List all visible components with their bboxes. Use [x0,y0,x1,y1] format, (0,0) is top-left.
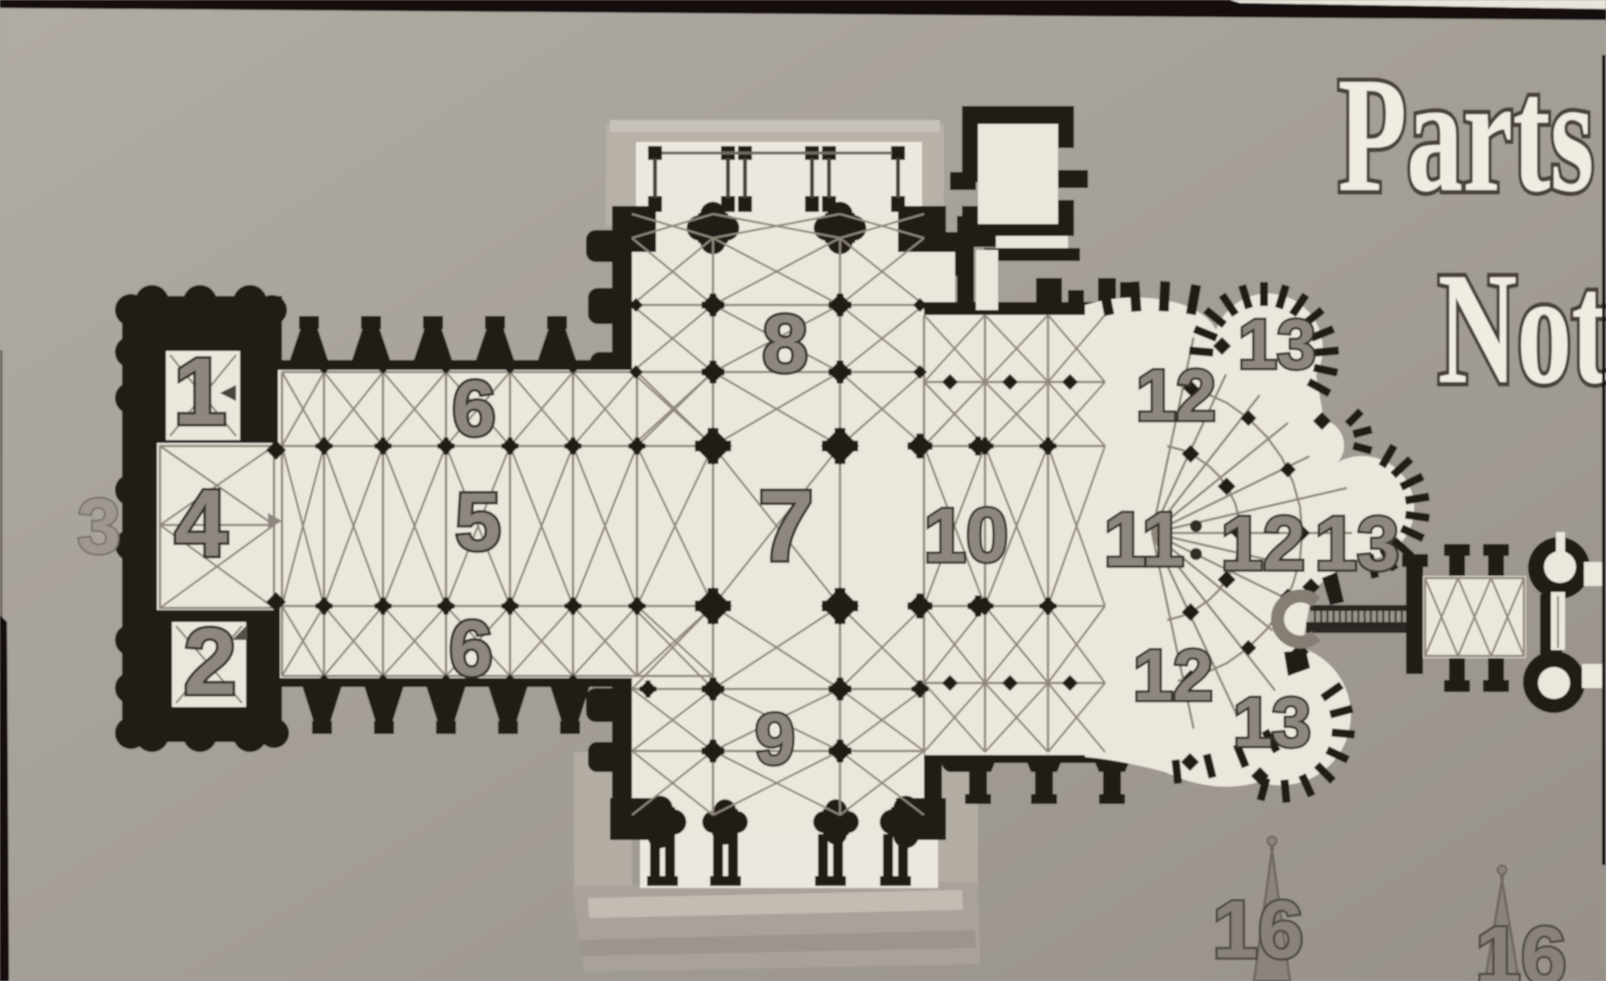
svg-text:4: 4 [175,471,228,577]
svg-text:Parts: Parts [1338,43,1594,226]
svg-text:10: 10 [924,494,1009,579]
svg-text:12: 12 [1133,636,1213,716]
svg-text:13: 13 [1233,683,1311,761]
svg-text:9: 9 [755,700,795,780]
svg-text:6: 6 [449,604,492,692]
svg-text:12: 12 [1221,502,1306,587]
svg-text:7: 7 [758,470,814,582]
svg-text:13: 13 [1315,502,1400,587]
svg-text:Not: Not [1438,239,1606,417]
svg-text:2: 2 [184,609,237,715]
svg-text:16: 16 [1475,911,1566,981]
svg-text:6: 6 [452,364,495,452]
svg-text:11: 11 [1104,498,1184,583]
svg-text:8: 8 [762,299,808,390]
svg-text:5: 5 [455,477,501,568]
svg-text:16: 16 [1212,885,1303,976]
svg-text:12: 12 [1136,356,1216,436]
svg-text:1: 1 [174,339,227,445]
svg-text:13: 13 [1238,305,1316,383]
svg-text:3: 3 [77,482,120,570]
